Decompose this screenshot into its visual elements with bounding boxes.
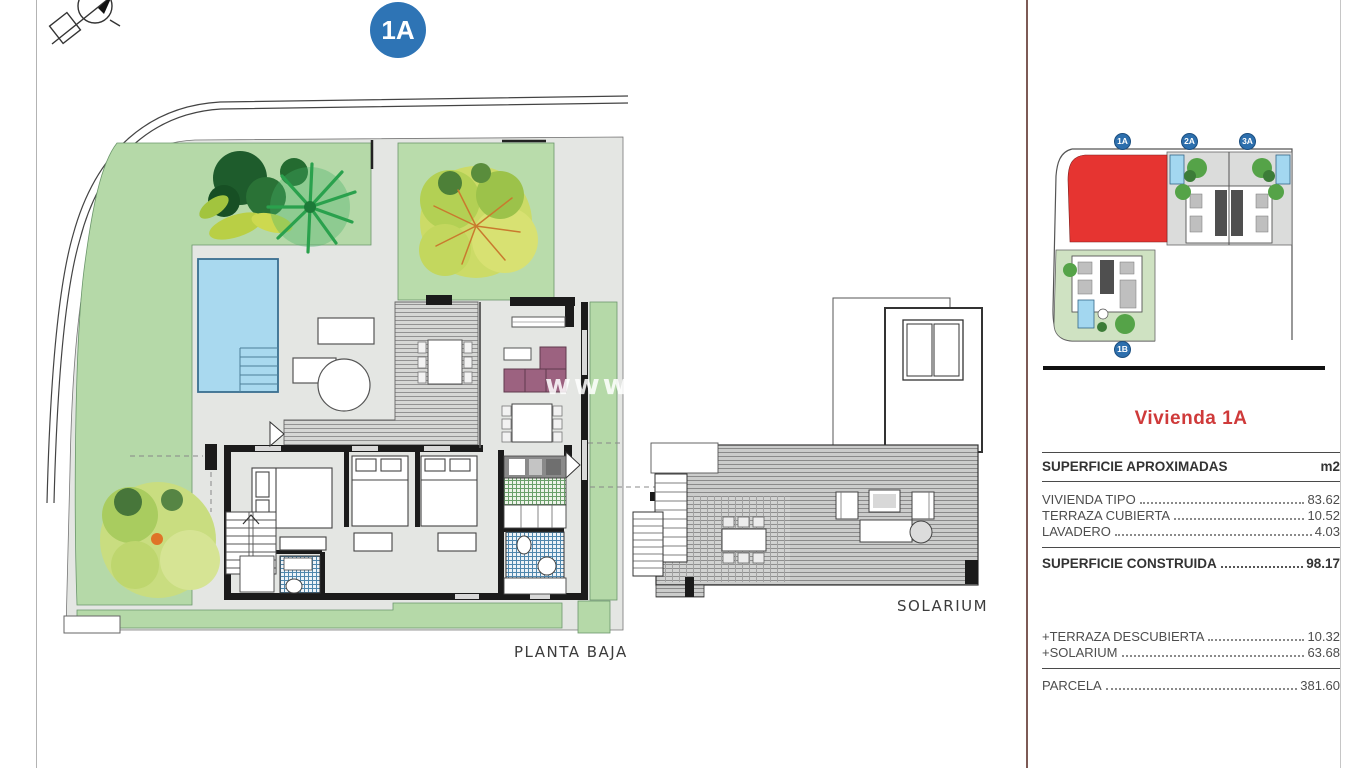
dotted-leader (1140, 502, 1305, 504)
planta-baja-label: PLANTA BAJA (514, 643, 628, 661)
dotted-leader (1115, 534, 1312, 536)
row-label: SUPERFICIE CONSTRUIDA (1042, 556, 1217, 571)
table-row: VIVIENDA TIPO 83.62 (1042, 491, 1340, 507)
dotted-leader (1174, 518, 1304, 520)
minimap-badge-1b: 1B (1114, 341, 1131, 358)
row-label: +SOLARIUM (1042, 645, 1118, 660)
swimming-pool (198, 259, 278, 392)
location-minimap (1040, 128, 1332, 378)
row-label: VIVIENDA TIPO (1042, 492, 1136, 507)
row-label: TERRAZA CUBIERTA (1042, 508, 1170, 523)
minimap-plots-2a-3a (1167, 152, 1292, 245)
kitchen (504, 456, 566, 528)
panel-title: Vivienda 1A (1042, 408, 1340, 430)
row-value: 4.03 (1315, 524, 1340, 539)
minimap-badge-3a: 3A (1239, 133, 1256, 150)
solarium-stairs (633, 474, 687, 576)
minimap-plot-1b (1054, 250, 1155, 341)
dotted-leader (1208, 639, 1304, 641)
table-row: +TERRAZA DESCUBIERTA 10.32 (1042, 628, 1340, 644)
row-label: PARCELA (1042, 678, 1102, 693)
dotted-leader (1221, 566, 1303, 568)
plan-sheet: 1A www PLANTA BAJA SOLARIUM (0, 0, 1366, 768)
stair-enclosure (833, 298, 982, 452)
dotted-leader (1106, 688, 1298, 690)
table-row: +SOLARIUM 63.68 (1042, 644, 1340, 660)
row-value: 10.52 (1307, 508, 1340, 523)
surface-table: SUPERFICIE APROXIMADAS m2 VIVIENDA TIPO … (1042, 452, 1340, 702)
row-value: 98.17 (1306, 556, 1340, 571)
row-label: LAVADERO (1042, 524, 1111, 539)
minimap-badge-2a: 2A (1181, 133, 1198, 150)
table-rule (1042, 481, 1340, 482)
north-compass-icon (40, 0, 140, 60)
row-value: 63.68 (1307, 645, 1340, 660)
bedrooms (252, 456, 477, 551)
table-row: TERRAZA CUBIERTA 10.52 (1042, 507, 1340, 523)
table-parcel-row: PARCELA 381.60 (1042, 669, 1340, 702)
table-row: LAVADERO 4.03 (1042, 523, 1340, 539)
row-value: 10.32 (1307, 629, 1340, 644)
row-label: +TERRAZA DESCUBIERTA (1042, 629, 1204, 644)
dotted-leader (1122, 655, 1305, 657)
minimap-badge-1a: 1A (1114, 133, 1131, 150)
page-right-edge (1340, 0, 1341, 768)
solarium-plan (633, 298, 982, 597)
driveway-step (64, 616, 120, 633)
unit-badge: 1A (370, 2, 426, 58)
table-header-row: SUPERFICIE APROXIMADAS m2 (1042, 453, 1340, 481)
table-total-row: SUPERFICIE CONSTRUIDA 98.17 (1042, 548, 1340, 579)
table-header-unit: m2 (1320, 459, 1340, 474)
solarium-deck (650, 443, 978, 597)
row-value: 83.62 (1307, 492, 1340, 507)
solarium-label: SOLARIUM (897, 597, 988, 615)
minimap-road-line (1043, 366, 1325, 370)
minimap-plot-1a-highlight (1068, 155, 1167, 242)
row-value: 381.60 (1300, 678, 1340, 693)
table-header-label: SUPERFICIE APROXIMADAS (1042, 459, 1228, 474)
